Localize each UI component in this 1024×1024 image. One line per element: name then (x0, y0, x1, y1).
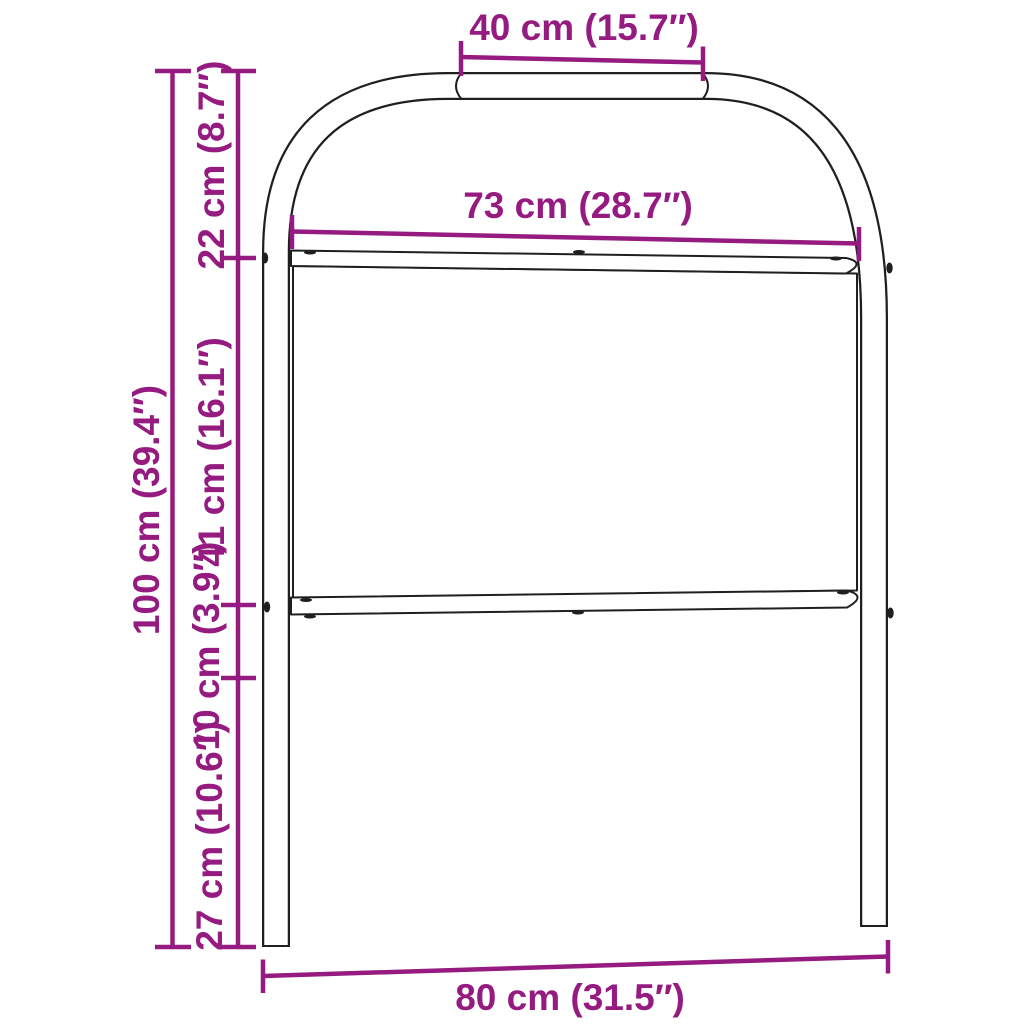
screw (262, 253, 268, 264)
screw (573, 250, 585, 254)
dimension-label-inner-width: 73 cm (28.7″) (463, 185, 693, 227)
screw (837, 591, 849, 595)
screw (264, 602, 270, 613)
dimension-label-top-width: 40 cm (15.7″) (469, 7, 699, 49)
screw (830, 257, 842, 261)
dimension-label-leg-segment: 27 cm (10.6″) (189, 721, 231, 951)
screw (886, 263, 892, 274)
dimension-line (292, 232, 859, 244)
dimension-label-rail-segment: 10 cm (3.9″) (186, 542, 228, 751)
screw (304, 251, 316, 255)
screw (300, 598, 312, 602)
dimension-line (263, 957, 888, 977)
dimension-label-upper-segment: 22 cm (8.7″) (191, 61, 233, 270)
dimension-label-panel-height: 41 cm (16.1″) (191, 337, 233, 567)
diagram-canvas: 40 cm (15.7″) 73 cm (28.7″) 22 cm (8.7″)… (0, 0, 1024, 1024)
dimension-label-total-width: 80 cm (31.5″) (455, 977, 685, 1019)
dimension-line (461, 57, 703, 63)
dimension-label-total-height: 100 cm (39.4″) (126, 385, 168, 635)
headboard-panel (293, 266, 857, 598)
screw (304, 615, 316, 619)
screw (572, 611, 584, 615)
screw (887, 608, 893, 619)
